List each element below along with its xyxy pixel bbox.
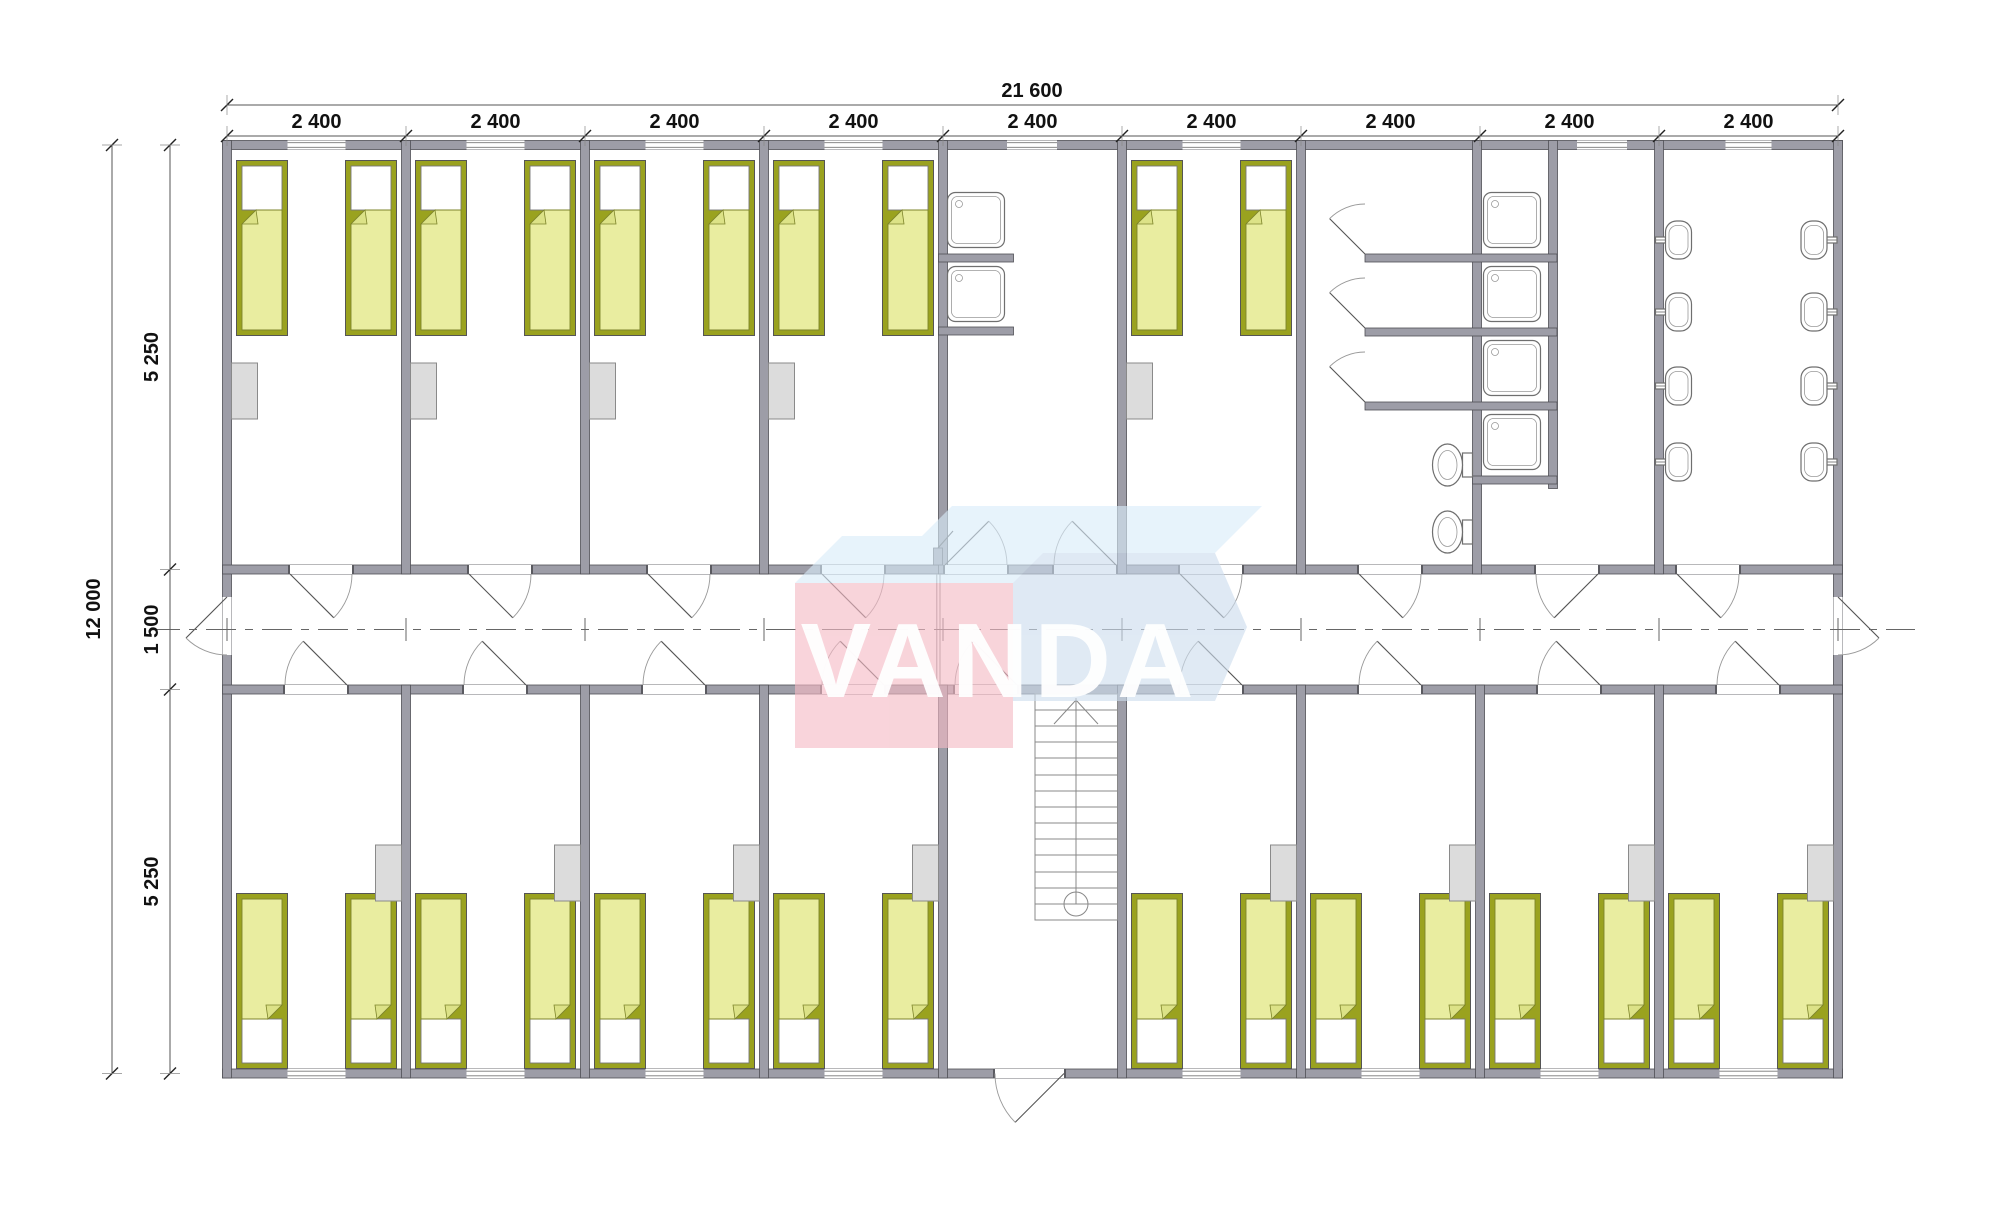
wash-basin	[1801, 443, 1837, 481]
bed	[1420, 894, 1471, 1069]
wardrobe	[1450, 845, 1476, 901]
bed	[1132, 894, 1183, 1069]
shower-tray	[948, 267, 1005, 322]
shower-tray	[1484, 193, 1541, 248]
window	[1362, 1069, 1420, 1078]
bed	[416, 894, 467, 1069]
window	[1577, 141, 1627, 150]
wardrobe	[769, 363, 795, 419]
shower-stub	[1473, 476, 1558, 484]
bed	[525, 161, 576, 336]
shower-stub	[939, 327, 1014, 335]
partition	[581, 141, 590, 575]
staircase	[1035, 694, 1118, 920]
window	[1720, 1069, 1778, 1078]
bed	[237, 161, 288, 336]
wardrobe	[555, 845, 581, 901]
stall-partition	[1365, 402, 1557, 410]
toilet	[1433, 511, 1473, 553]
bed	[346, 894, 397, 1069]
wardrobe	[913, 845, 939, 901]
window	[825, 1069, 883, 1078]
exit-door-left	[186, 597, 232, 655]
wc-room-door	[1357, 565, 1423, 618]
bed	[704, 161, 755, 336]
dim-label-total-depth: 12 000	[83, 578, 105, 639]
room-door	[288, 565, 354, 618]
shower-tray	[1484, 267, 1541, 322]
bed	[1599, 894, 1650, 1069]
bed	[1311, 894, 1362, 1069]
wardrobe	[1629, 845, 1655, 901]
partition	[939, 141, 948, 575]
floor-plan: 21 600 2 400 2 400 2 400 2 400 2 400 2 4…	[0, 0, 2000, 1219]
bed	[237, 894, 288, 1069]
shower-tray	[1484, 341, 1541, 396]
shower-tray	[1484, 415, 1541, 470]
wash-basin	[1801, 293, 1837, 331]
room-door	[462, 641, 528, 694]
dim-label-module: 2 400	[1544, 111, 1594, 133]
partition	[581, 685, 590, 1078]
partition	[760, 685, 769, 1078]
dim-label-module: 2 400	[1007, 111, 1057, 133]
wash-basin	[1801, 221, 1837, 259]
window	[1183, 1069, 1241, 1078]
room-door	[467, 565, 533, 618]
sanitary-wall	[1549, 141, 1558, 489]
partition	[1655, 685, 1664, 1078]
bed	[1778, 894, 1829, 1069]
stall-partition	[1365, 254, 1557, 262]
window	[467, 141, 525, 150]
dimension-left-total: 12 000	[83, 139, 122, 1080]
partition	[1297, 141, 1306, 575]
toilet	[1433, 444, 1473, 486]
wardrobe	[1808, 845, 1834, 901]
dim-label-segment: 5 250	[141, 332, 163, 382]
dimension-top-total: 21 600	[221, 80, 1844, 115]
bed	[774, 894, 825, 1069]
dim-label-module: 2 400	[1723, 111, 1773, 133]
wardrobe	[1271, 845, 1297, 901]
bed	[416, 161, 467, 336]
dim-label-segment: 1 500	[141, 604, 163, 654]
bed	[1490, 894, 1541, 1069]
dim-label-module: 2 400	[649, 111, 699, 133]
bed	[1669, 894, 1720, 1069]
bed	[346, 161, 397, 336]
bed	[704, 894, 755, 1069]
wardrobe	[734, 845, 760, 901]
room-door	[283, 641, 349, 694]
bed	[1241, 161, 1292, 336]
bed	[525, 894, 576, 1069]
dim-label-module: 2 400	[291, 111, 341, 133]
partition	[402, 685, 411, 1078]
shower-tray	[948, 193, 1005, 248]
wash-basin	[1801, 367, 1837, 405]
bed	[1241, 894, 1292, 1069]
dim-label-segment: 5 250	[141, 856, 163, 906]
room-door	[1715, 641, 1781, 694]
window	[646, 141, 704, 150]
bed	[774, 161, 825, 336]
window	[1183, 141, 1241, 150]
partition	[1655, 141, 1664, 575]
dim-label-module: 2 400	[828, 111, 878, 133]
partition	[1476, 685, 1485, 1078]
window	[288, 1069, 346, 1078]
wardrobe	[232, 363, 258, 419]
window	[467, 1069, 525, 1078]
room-door	[646, 565, 712, 618]
bed	[595, 894, 646, 1069]
stall-partition	[1365, 328, 1557, 336]
bed	[1132, 161, 1183, 336]
wardrobe	[1127, 363, 1153, 419]
partition	[760, 141, 769, 575]
window	[825, 141, 883, 150]
washroom-door	[1675, 565, 1741, 618]
dim-label-module: 2 400	[1186, 111, 1236, 133]
exit-door-right	[1834, 597, 1880, 655]
window	[646, 1069, 704, 1078]
stall-doors	[1330, 204, 1365, 402]
wardrobe	[376, 845, 402, 901]
window	[288, 141, 346, 150]
sanitary-wall	[1473, 141, 1482, 575]
room-door	[1357, 641, 1423, 694]
window	[1726, 141, 1772, 150]
window	[1541, 1069, 1599, 1078]
bed	[883, 161, 934, 336]
beds-bottom	[237, 894, 1829, 1069]
dim-label-module: 2 400	[470, 111, 520, 133]
partition	[1297, 685, 1306, 1078]
room-door	[1536, 641, 1602, 694]
dim-label-total-width: 21 600	[1001, 80, 1062, 102]
sanitary-fixtures	[948, 193, 1838, 554]
dim-label-module: 2 400	[1365, 111, 1415, 133]
bed	[883, 894, 934, 1069]
wardrobe	[590, 363, 616, 419]
logo-text: VANDA	[800, 602, 1199, 720]
window	[1007, 141, 1057, 150]
room-door	[641, 641, 707, 694]
bed	[595, 161, 646, 336]
shower-stub	[939, 254, 1014, 262]
dimension-left-segments: 5 250 1 500 5 250	[141, 139, 180, 1080]
partition	[402, 141, 411, 575]
shower-room-door	[1534, 565, 1600, 618]
wardrobe	[411, 363, 437, 419]
main-entrance-door	[993, 1069, 1066, 1122]
stairwell-wall	[1118, 685, 1127, 1078]
